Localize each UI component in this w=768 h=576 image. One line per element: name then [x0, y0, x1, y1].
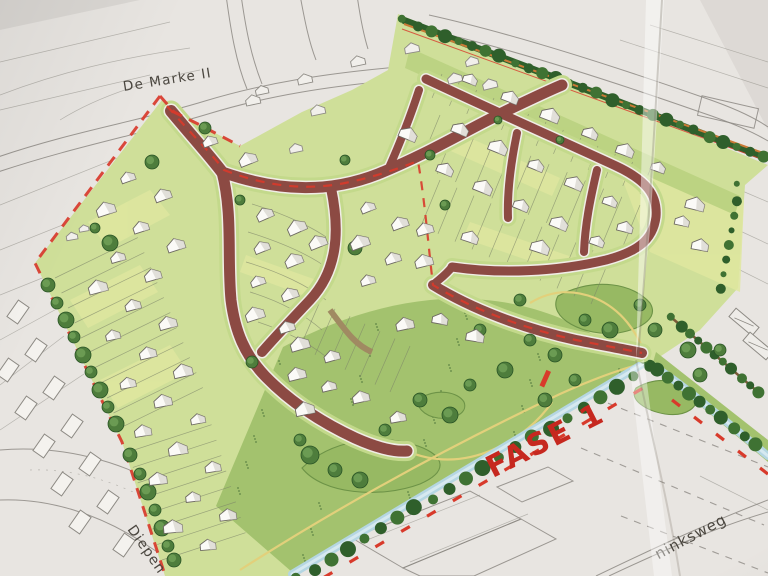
speckle	[458, 344, 460, 346]
water-tree	[340, 541, 356, 557]
speckle	[456, 338, 458, 340]
tree	[680, 342, 696, 358]
hedge-tree	[720, 271, 726, 277]
water-tree	[459, 471, 473, 485]
red-boundary-tick	[426, 510, 436, 518]
speckle	[352, 404, 354, 406]
tree	[464, 379, 476, 391]
hedge-tree	[659, 113, 673, 127]
avenue-tree	[746, 381, 754, 389]
existing-house-outline	[51, 472, 73, 496]
hedge-tree	[716, 135, 730, 149]
speckle	[360, 378, 362, 380]
red-boundary-tick	[715, 433, 725, 442]
hedge-tree	[398, 15, 406, 23]
speckle	[377, 329, 379, 331]
hedge-tree	[467, 41, 477, 51]
speckle	[302, 554, 304, 556]
existing-house-outline	[69, 510, 91, 534]
speckle	[529, 379, 531, 381]
pencil-house	[297, 72, 313, 85]
existing-house-outline	[43, 376, 65, 400]
avenue-tree	[725, 363, 737, 375]
speckle	[448, 364, 450, 366]
red-boundary-tick	[759, 467, 768, 476]
hedge-tree	[590, 87, 602, 99]
water-tree	[650, 363, 664, 377]
speckle	[531, 385, 533, 387]
tree	[58, 312, 74, 328]
speckle	[247, 467, 249, 469]
tree	[90, 223, 100, 233]
speckle	[310, 528, 312, 530]
water-tree	[406, 499, 422, 515]
hedge-tree	[492, 49, 506, 63]
speckle	[350, 398, 352, 400]
existing-house-outline	[61, 414, 83, 438]
speckle	[375, 323, 377, 325]
speckle	[312, 534, 314, 536]
tree	[140, 484, 156, 500]
water-tree	[714, 411, 728, 425]
tree	[352, 472, 368, 488]
speckle	[424, 442, 426, 444]
speckle	[449, 367, 451, 369]
speckle	[513, 431, 515, 433]
speckle	[263, 415, 265, 417]
red-boundary-tick	[349, 556, 359, 564]
water-tree	[705, 405, 715, 415]
avenue-tree	[752, 386, 764, 398]
water-tree	[390, 511, 404, 525]
speckle	[465, 315, 467, 317]
tree	[134, 468, 146, 480]
speckle	[320, 508, 322, 510]
water-tree	[359, 534, 369, 544]
tree	[379, 424, 391, 436]
hedge-tree	[732, 196, 742, 206]
hedge-tree	[605, 93, 619, 107]
site-plan-illustration: De Marke II Diepen ninksweg FASE 1	[0, 0, 768, 576]
hedge-tree	[733, 143, 741, 151]
tree	[41, 278, 55, 292]
tree	[162, 540, 174, 552]
speckle	[537, 353, 539, 355]
speckle	[538, 356, 540, 358]
speckle	[246, 464, 248, 466]
hedge-tree	[578, 83, 588, 93]
water-tree	[444, 483, 456, 495]
hedge-tree	[730, 212, 738, 220]
speckle	[318, 502, 320, 504]
speckle	[319, 505, 321, 507]
hedge-tree	[524, 63, 534, 73]
speckle	[433, 419, 435, 421]
speckle	[279, 363, 281, 365]
hedge-tree	[734, 181, 740, 187]
tree	[602, 322, 618, 338]
water-tree	[662, 372, 674, 384]
speckle	[303, 557, 305, 559]
existing-house-outline	[0, 358, 19, 382]
tree	[497, 362, 513, 378]
tree	[51, 297, 63, 309]
speckle	[450, 370, 452, 372]
tree	[340, 155, 350, 165]
speckle	[278, 360, 280, 362]
water-tree	[428, 494, 438, 504]
water-tree	[375, 522, 387, 534]
tree	[425, 150, 435, 160]
avenue-tree	[737, 373, 747, 383]
red-boundary-tick	[375, 540, 385, 548]
existing-house-outline	[33, 434, 55, 458]
hedge-tree	[688, 124, 698, 134]
hedge-tree	[716, 284, 726, 294]
tree	[648, 323, 662, 337]
tree	[149, 504, 161, 516]
tree	[246, 356, 258, 368]
existing-house-outline	[7, 300, 29, 324]
red-boundary-tick	[478, 479, 488, 487]
water-tree	[309, 564, 321, 576]
speckle	[255, 441, 257, 443]
tree	[235, 195, 245, 205]
water-tree	[748, 437, 762, 451]
speckle	[361, 381, 363, 383]
hedge-tree	[511, 59, 519, 67]
hedge-tree	[536, 67, 548, 79]
hedge-tree	[729, 227, 735, 233]
speckle	[539, 359, 541, 361]
pencil-house	[350, 54, 366, 67]
speckle	[254, 438, 256, 440]
hedge-tree	[455, 37, 463, 45]
pencil-house	[255, 84, 269, 95]
tree	[569, 374, 581, 386]
speckle	[407, 491, 409, 493]
tree	[494, 116, 502, 124]
water-tree	[740, 431, 750, 441]
tree	[440, 200, 450, 210]
farm-building-outline	[743, 332, 768, 360]
tree	[714, 344, 726, 356]
red-boundary-tick	[693, 416, 703, 425]
tree	[108, 416, 124, 432]
hedge-tree	[426, 25, 438, 37]
tree	[514, 294, 526, 306]
tree	[328, 463, 342, 477]
district-label: De Marke II	[122, 65, 213, 95]
speckle	[521, 405, 523, 407]
speckle	[351, 401, 353, 403]
avenue-tree	[667, 313, 675, 321]
water-tree	[682, 387, 696, 401]
tree	[548, 348, 562, 362]
hedge-tree	[438, 29, 452, 43]
speckle	[522, 408, 524, 410]
tree	[123, 448, 137, 462]
speckle	[261, 409, 263, 411]
speckle	[237, 487, 239, 489]
tree	[75, 347, 91, 363]
tree	[294, 434, 306, 446]
avenue-tree	[719, 358, 727, 366]
tree	[92, 382, 108, 398]
tree	[538, 393, 552, 407]
water-tree	[325, 553, 339, 567]
speckle	[408, 494, 410, 496]
water-tree	[673, 381, 683, 391]
speckle	[466, 318, 468, 320]
speckle	[376, 326, 378, 328]
avenue-tree	[694, 337, 702, 345]
tree	[556, 136, 564, 144]
avenue-tree	[685, 329, 695, 339]
tree	[145, 155, 159, 169]
existing-house-outline	[97, 490, 119, 514]
speckle	[238, 490, 240, 492]
hedge-tree	[622, 101, 630, 109]
speckle	[425, 445, 427, 447]
tree	[102, 235, 118, 251]
speckle	[311, 531, 313, 533]
tree	[442, 407, 458, 423]
tree	[167, 553, 181, 567]
speckle	[434, 422, 436, 424]
tree	[524, 334, 536, 346]
existing-house-outline	[15, 396, 37, 420]
hedge-tree	[480, 45, 492, 57]
red-boundary-tick	[323, 571, 333, 576]
tree	[301, 446, 319, 464]
tree	[85, 366, 97, 378]
photo-of-site-plan: De Marke II Diepen ninksweg FASE 1	[0, 0, 768, 576]
hedge-tree	[745, 147, 755, 157]
speckle	[457, 341, 459, 343]
tree	[413, 393, 427, 407]
tree	[199, 122, 211, 134]
existing-house-outline	[25, 338, 47, 362]
hedge-tree	[722, 256, 730, 264]
speckle	[530, 382, 532, 384]
hedge-tree	[676, 121, 684, 129]
speckle	[423, 439, 425, 441]
speckle	[253, 435, 255, 437]
speckle	[262, 412, 264, 414]
tree	[68, 331, 80, 343]
tree	[579, 314, 591, 326]
tree	[102, 401, 114, 413]
hedge-tree	[413, 21, 423, 31]
speckle	[245, 461, 247, 463]
water-tree	[609, 379, 625, 395]
hedge-tree	[704, 131, 716, 143]
hedge-tree	[724, 240, 734, 250]
water-tree	[728, 422, 740, 434]
tree	[693, 368, 707, 382]
water-tree	[694, 396, 706, 408]
speckle	[239, 493, 241, 495]
